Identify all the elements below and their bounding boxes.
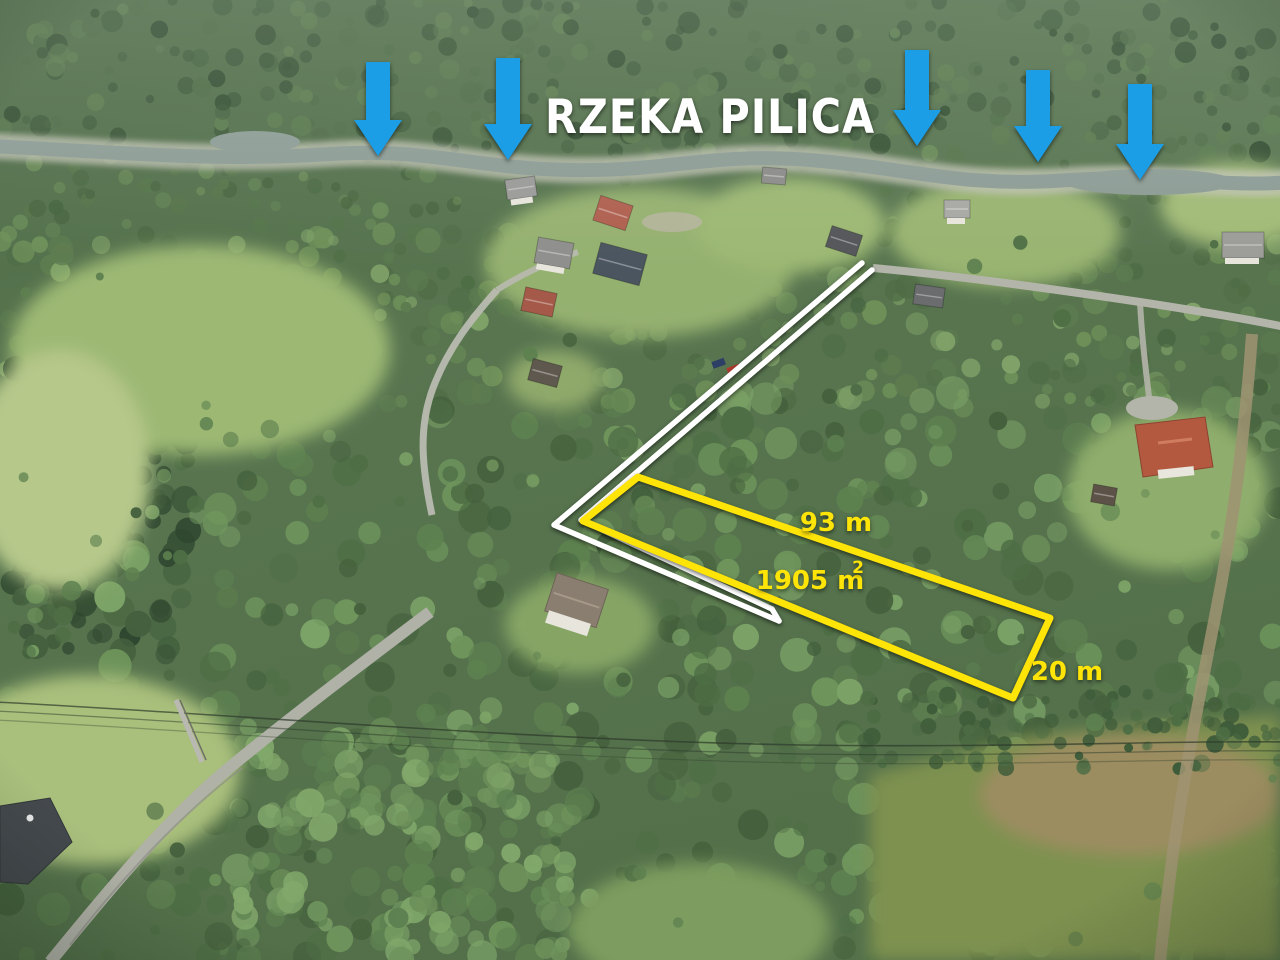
river-title: RZEKA PILICA (545, 90, 875, 145)
plot-width-label: 20 m (1031, 657, 1103, 687)
plot-length-label: 93 m (800, 508, 872, 538)
plot-area-superscript: 2 (852, 558, 864, 578)
plot-area-label: 1905 m (756, 566, 865, 596)
aerial-listing-photo: RZEKA PILICA 93 m 1905 m 2 20 m (0, 0, 1280, 960)
